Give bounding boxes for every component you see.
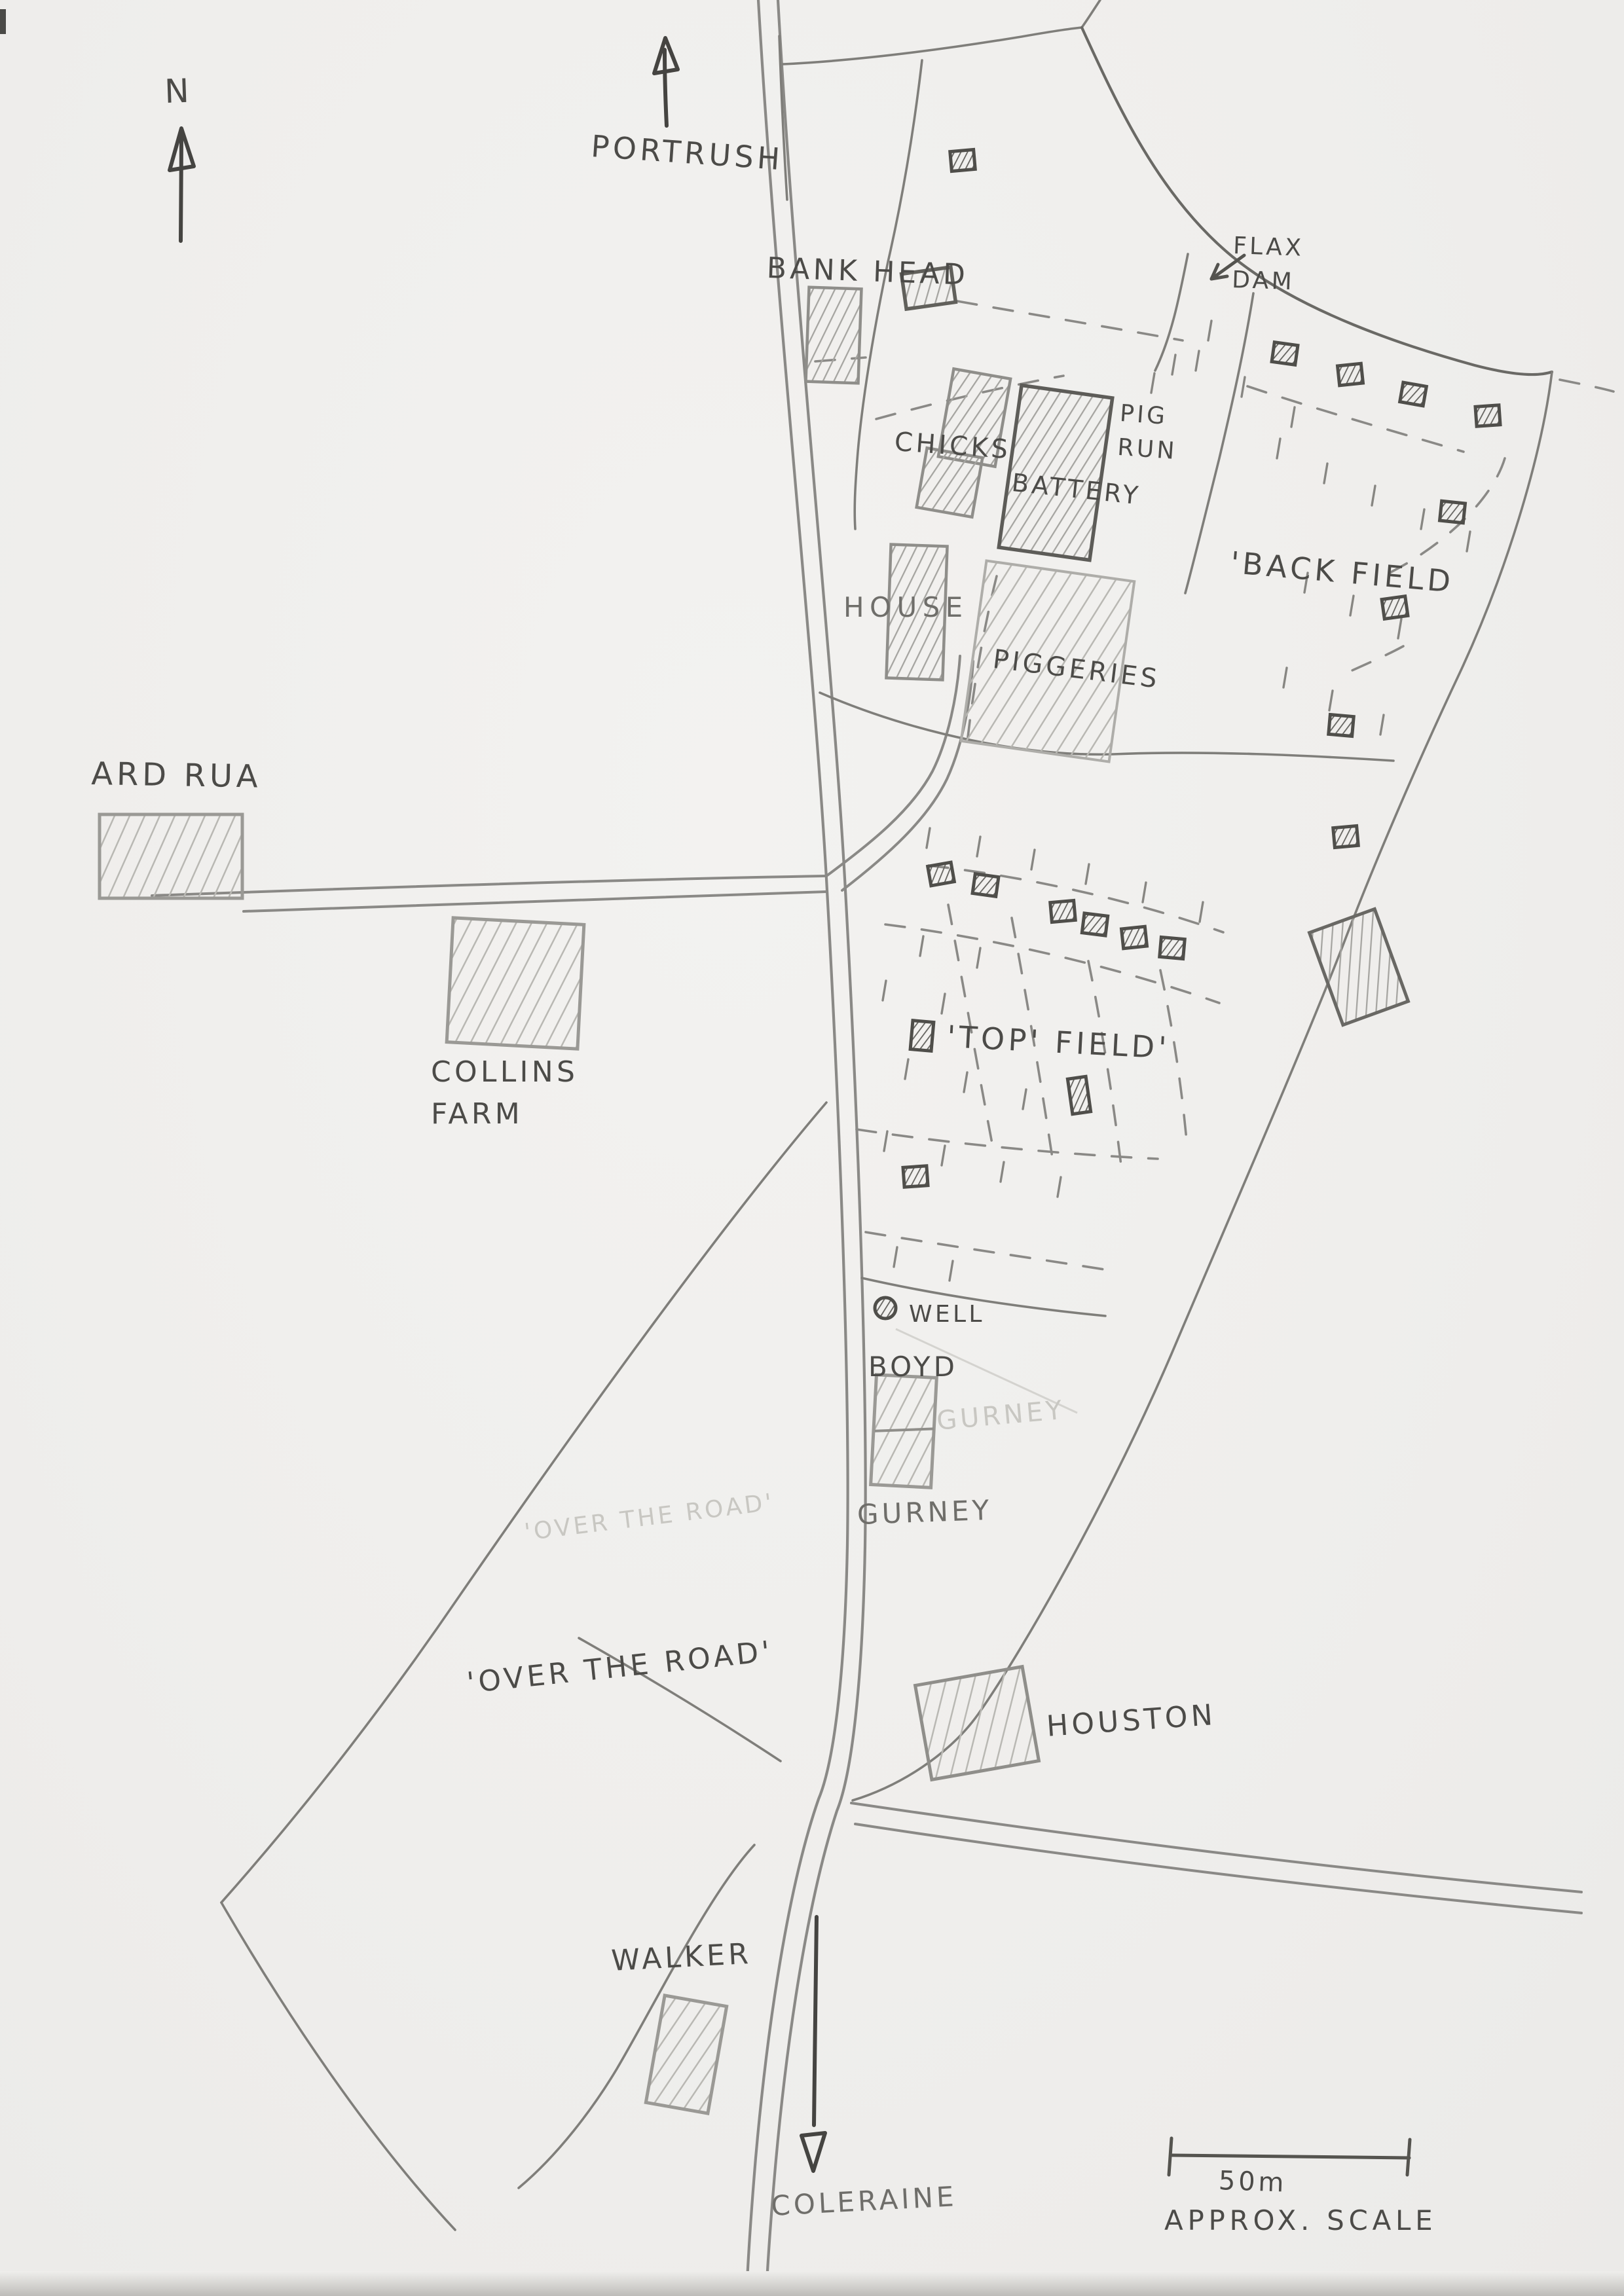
label-house: HOUSE	[843, 588, 969, 628]
map-linework	[0, 0, 1624, 2296]
label-collins-farm: COLLINS FARM	[431, 1051, 578, 1135]
field-boundaries	[221, 0, 1552, 2230]
north-label: N	[164, 67, 194, 115]
label-gurney: GURNEY	[857, 1491, 993, 1535]
label-bank-head: BANK HEAD	[766, 247, 969, 297]
farmyard-lane	[826, 656, 973, 890]
label-walker: WALKER	[610, 1933, 753, 1982]
building-collins-farm	[447, 918, 584, 1049]
coleraine-arrow	[802, 1917, 825, 2171]
scale-bar	[1169, 2138, 1410, 2175]
building-bank-head-house	[806, 287, 862, 384]
sketch-map-page: N PORTRUSH BANK HEAD FLAX DAM CHICKS BAT…	[0, 0, 1624, 2296]
building-walker	[646, 1995, 726, 2113]
scan-bottom-edge	[0, 2271, 1624, 2296]
well-icon	[875, 1298, 896, 1319]
north-arrow	[170, 128, 194, 241]
label-boyd: BOYD	[868, 1347, 958, 1387]
label-ard-rua: ARD RUA	[91, 752, 262, 800]
label-pig-run: PIG RUN	[1116, 397, 1181, 469]
building-boyd-gurney	[871, 1375, 937, 1488]
scale-caption-label: APPROX. SCALE	[1164, 2201, 1437, 2241]
portrush-arrow	[654, 38, 678, 126]
scan-corner-mark	[0, 9, 6, 34]
building-ard-rua	[100, 814, 242, 898]
ard-rua-lane	[152, 876, 826, 911]
scale-distance-label: 50m	[1218, 2162, 1287, 2202]
building-east-of-top-field	[1310, 909, 1409, 1025]
southeast-lane	[851, 1803, 1581, 1913]
label-flax-dam: FLAX DAM	[1231, 229, 1304, 300]
building-houston	[915, 1667, 1039, 1780]
label-well: WELL	[909, 1298, 985, 1332]
label-chicks: CHICKS	[893, 423, 1012, 469]
